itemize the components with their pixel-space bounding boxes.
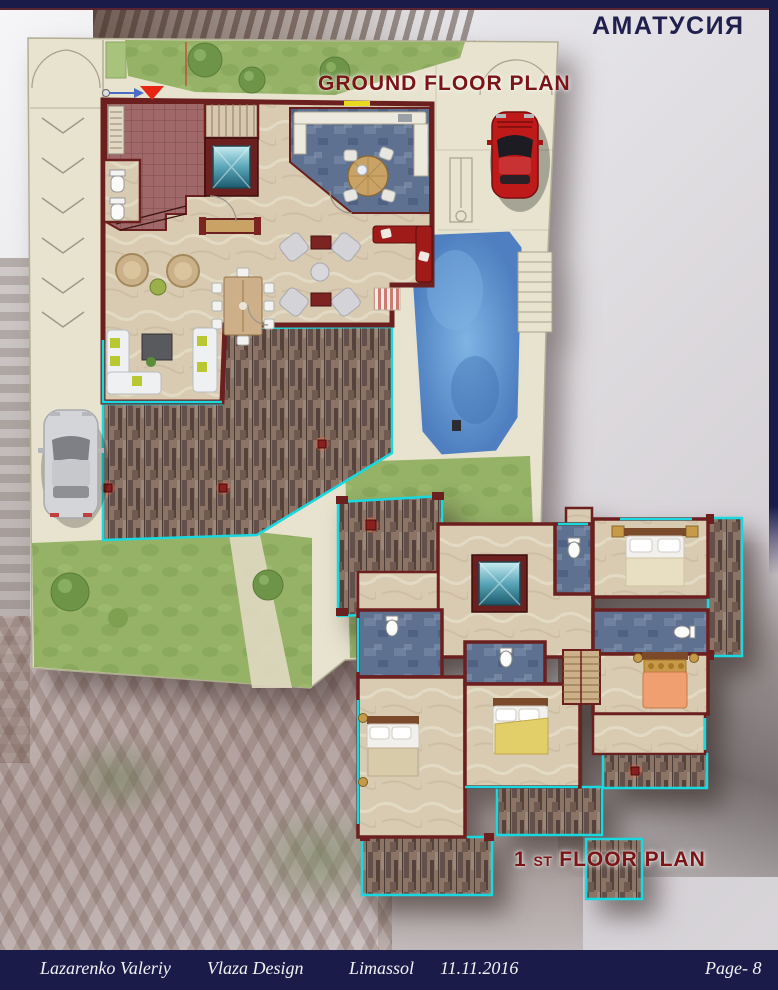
footer-studio: Vlaza Design (207, 958, 304, 979)
footer-city: Limassol (349, 958, 414, 979)
first-floor-text: FLOOR PLAN (559, 848, 706, 871)
ground-floor-plan-label: GROUND FLOOR PLAN (318, 72, 571, 96)
sink-icon (398, 114, 412, 122)
tv-cabinet (142, 334, 172, 360)
bathroom-top (555, 524, 592, 594)
footer-date: 11.11.2016 (440, 958, 518, 979)
first-floor-plan-label: 1 ST FLOOR PLAN (514, 848, 706, 872)
project-title: АМАТУСИЯ (592, 12, 745, 41)
staircase (563, 650, 600, 704)
pool-steps (518, 252, 552, 332)
top-border-bar (0, 0, 778, 10)
window-marker (344, 101, 370, 106)
footer-author: Lazarenko Valeriy (40, 958, 171, 979)
toilet-icon (111, 176, 124, 192)
elevator (472, 555, 527, 612)
bed-center (493, 698, 548, 754)
first-floor-ordinal: ST (534, 853, 553, 869)
bed-left (359, 714, 420, 787)
footer-bar: Lazarenko Valeriy Vlaza Design Limassol … (0, 950, 778, 990)
side-table (150, 279, 166, 295)
footer-page-number: Page- 8 (705, 958, 761, 979)
fireplace-pillar (311, 293, 331, 306)
pool-cleaner-icon (452, 420, 461, 431)
first-floor-plan (330, 492, 750, 907)
toilet-icon (111, 204, 124, 220)
bench (199, 217, 261, 235)
background-bush (55, 735, 180, 820)
fireplace-pillar (311, 236, 331, 249)
bathroom-left (358, 610, 442, 677)
striped-rug (374, 288, 400, 310)
wc (104, 160, 140, 222)
plant-icon (146, 357, 156, 367)
first-floor-number: 1 (514, 848, 527, 871)
staircase (205, 104, 258, 138)
silver-car (38, 410, 109, 528)
elevator (205, 138, 258, 196)
right-border-bar (769, 0, 778, 575)
